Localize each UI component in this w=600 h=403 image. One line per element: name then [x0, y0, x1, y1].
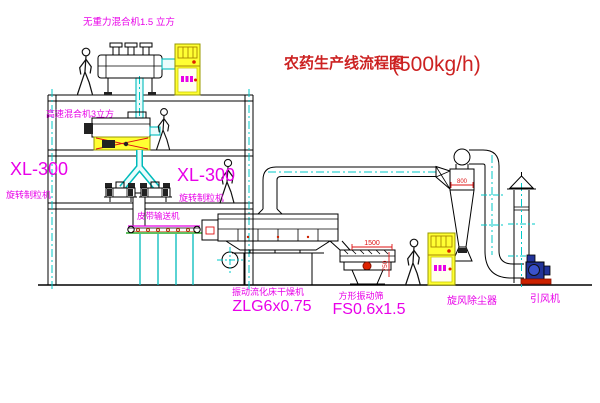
label-granulator-name-left: 旋转制粒机 — [6, 189, 51, 200]
dim-cyclone-inlet: 800 — [457, 179, 468, 185]
belt-conveyor — [126, 226, 202, 285]
exhaust-duct — [258, 167, 438, 214]
dim-sieve-height: 750 — [382, 260, 389, 271]
no-gravity-mixer — [98, 43, 175, 118]
label-dryer-model: ZLG6x0.75 — [232, 298, 311, 315]
label-granulator-name-center: 旋转制粒机 — [179, 192, 224, 203]
person-roof — [78, 48, 93, 94]
diagram-title: 农药生产线流程图 — [283, 54, 404, 72]
induced-draft-fan — [521, 255, 551, 284]
fluid-bed-dryer — [202, 214, 350, 285]
person-ground — [406, 239, 421, 285]
process-flow-diagram: 无重力混合机1.5 立方 高速混合机3立方 XL-300 旋转制粒机 XL-30… — [0, 0, 600, 403]
label-granulator-model-center: XL-300 — [177, 165, 235, 185]
person-mixer-floor — [156, 109, 169, 150]
control-cabinet-top — [175, 44, 200, 95]
label-sieve-name: 方形振动筛 — [338, 290, 383, 301]
label-dryer-name: 振动流化床干燥机 — [232, 286, 304, 297]
dim-sieve-width: 1500 — [364, 240, 380, 247]
label-granulator-model-left: XL-300 — [10, 159, 68, 179]
diagram-title-capacity: (500kg/h) — [392, 53, 481, 76]
label-sieve-model: FS0.6x1.5 — [333, 301, 406, 318]
label-high-speed-mixer: 高速混合机3立方 — [46, 108, 114, 119]
label-cyclone: 旋风除尘器 — [447, 294, 497, 307]
control-cabinet-ground — [428, 233, 455, 285]
label-fan: 引风机 — [530, 292, 560, 305]
label-no-gravity-mixer: 无重力混合机1.5 立方 — [83, 16, 175, 28]
label-belt-conveyor: 皮带输送机 — [137, 211, 180, 221]
diagram-canvas: 无重力混合机1.5 立方 高速混合机3立方 XL-300 旋转制粒机 XL-30… — [0, 0, 600, 403]
granulator-discharge-pipe — [133, 193, 145, 226]
